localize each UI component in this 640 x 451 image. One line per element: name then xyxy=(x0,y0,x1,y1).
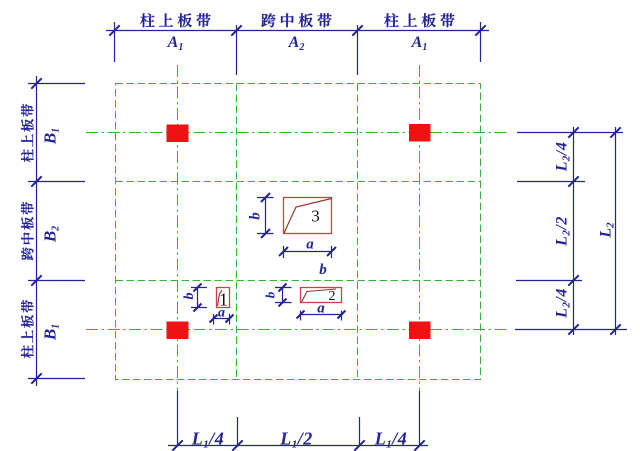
svg-text:b: b xyxy=(319,262,327,278)
svg-text:a: a xyxy=(306,237,314,253)
svg-text:a: a xyxy=(218,306,225,321)
svg-text:2: 2 xyxy=(329,289,336,304)
svg-text:b: b xyxy=(182,293,197,300)
svg-text:b: b xyxy=(262,291,277,298)
svg-text:b: b xyxy=(248,212,264,220)
svg-text:a: a xyxy=(317,301,325,317)
svg-text:3: 3 xyxy=(311,207,320,226)
